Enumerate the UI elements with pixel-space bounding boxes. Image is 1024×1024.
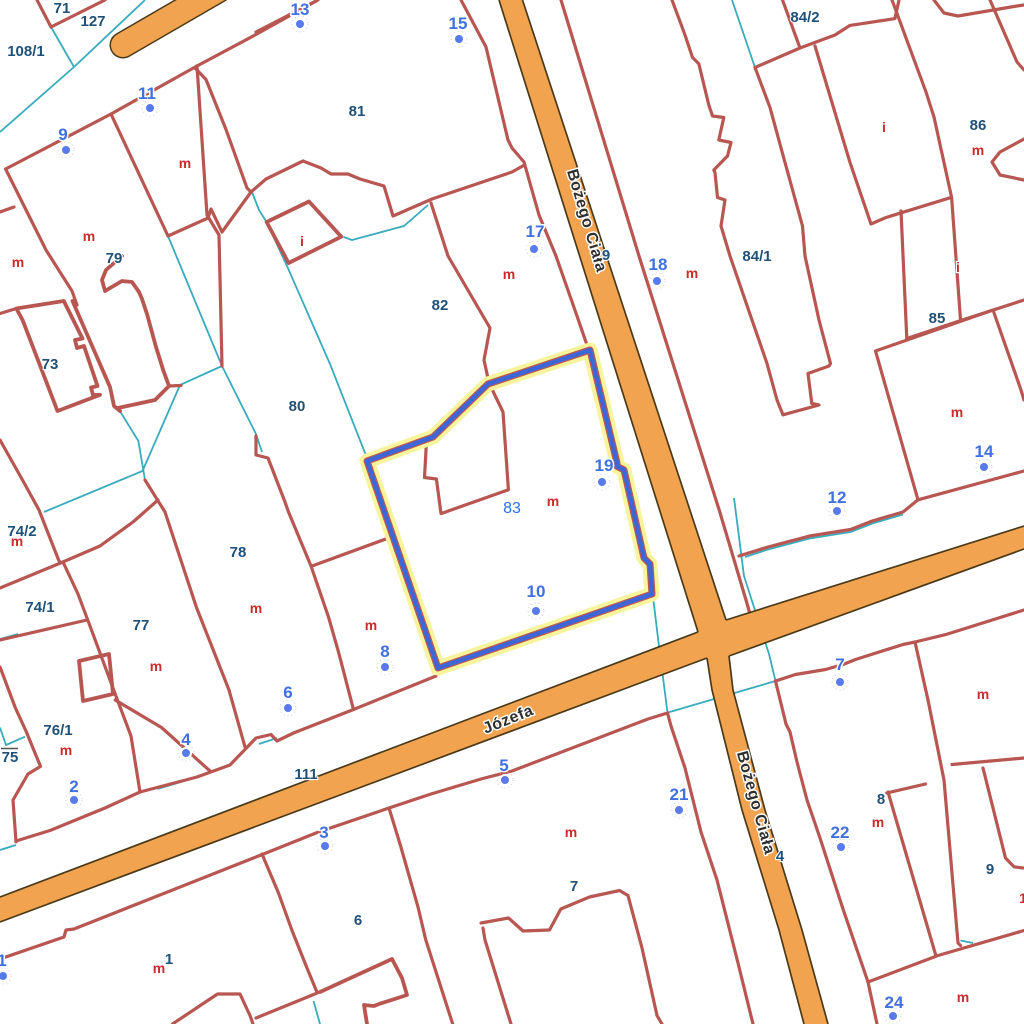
- svg-text:79: 79: [106, 250, 123, 267]
- svg-text:m: m: [565, 824, 577, 840]
- svg-text:82: 82: [432, 297, 449, 314]
- svg-text:111: 111: [294, 766, 317, 783]
- svg-text:8: 8: [877, 791, 885, 808]
- svg-text:m: m: [686, 265, 698, 281]
- svg-text:m: m: [977, 686, 989, 702]
- svg-text:m: m: [951, 404, 963, 420]
- svg-text:11: 11: [138, 84, 156, 103]
- svg-text:14: 14: [975, 442, 994, 461]
- svg-text:m: m: [83, 228, 95, 244]
- svg-text:73: 73: [42, 356, 59, 373]
- svg-text:81: 81: [349, 103, 366, 120]
- svg-text:10: 10: [527, 582, 546, 601]
- svg-text:m: m: [957, 989, 969, 1005]
- svg-text:m: m: [872, 814, 884, 830]
- svg-text:m: m: [11, 533, 23, 549]
- svg-text:m: m: [972, 142, 984, 158]
- svg-text:12: 12: [828, 488, 847, 507]
- svg-text:9: 9: [986, 861, 994, 878]
- svg-text:85: 85: [929, 310, 946, 327]
- svg-text:84/2: 84/2: [790, 9, 819, 26]
- svg-text:108/1: 108/1: [7, 43, 45, 60]
- svg-text:78: 78: [230, 544, 247, 561]
- svg-text:m: m: [153, 960, 165, 976]
- svg-text:i: i: [882, 119, 886, 135]
- svg-text:13: 13: [291, 0, 310, 19]
- svg-text:2: 2: [69, 777, 78, 796]
- svg-text:6: 6: [354, 912, 362, 929]
- svg-text:i: i: [956, 259, 960, 275]
- svg-text:1: 1: [165, 951, 173, 968]
- svg-text:m: m: [60, 742, 72, 758]
- svg-text:i: i: [300, 233, 304, 249]
- svg-text:19: 19: [595, 456, 614, 475]
- svg-text:m: m: [547, 493, 559, 509]
- svg-text:7: 7: [835, 655, 844, 674]
- svg-text:127: 127: [80, 13, 105, 30]
- svg-text:9: 9: [58, 125, 67, 144]
- svg-text:75: 75: [2, 749, 19, 766]
- svg-text:m: m: [150, 658, 162, 674]
- svg-text:4: 4: [776, 848, 785, 865]
- svg-text:71: 71: [54, 0, 71, 17]
- svg-text:86: 86: [970, 117, 987, 134]
- svg-text:15: 15: [449, 14, 468, 33]
- svg-text:4: 4: [181, 730, 191, 749]
- svg-text:9: 9: [602, 247, 610, 264]
- svg-text:m: m: [365, 617, 377, 633]
- svg-text:1: 1: [1019, 890, 1024, 906]
- svg-text:m: m: [250, 600, 262, 616]
- svg-text:76/1: 76/1: [43, 722, 72, 739]
- svg-text:80: 80: [289, 398, 306, 415]
- svg-text:m: m: [179, 155, 191, 171]
- svg-text:7: 7: [570, 878, 578, 895]
- svg-text:m: m: [503, 266, 515, 282]
- svg-text:74/1: 74/1: [25, 599, 54, 616]
- svg-text:17: 17: [526, 222, 545, 241]
- svg-text:21: 21: [670, 785, 689, 804]
- svg-text:24: 24: [885, 993, 904, 1012]
- svg-text:84/1: 84/1: [742, 248, 771, 265]
- svg-text:83: 83: [503, 500, 521, 517]
- svg-text:77: 77: [133, 617, 150, 634]
- svg-text:m: m: [12, 254, 24, 270]
- svg-text:1: 1: [0, 951, 7, 970]
- svg-text:8: 8: [380, 642, 389, 661]
- svg-text:18: 18: [649, 255, 668, 274]
- svg-text:6: 6: [283, 683, 292, 702]
